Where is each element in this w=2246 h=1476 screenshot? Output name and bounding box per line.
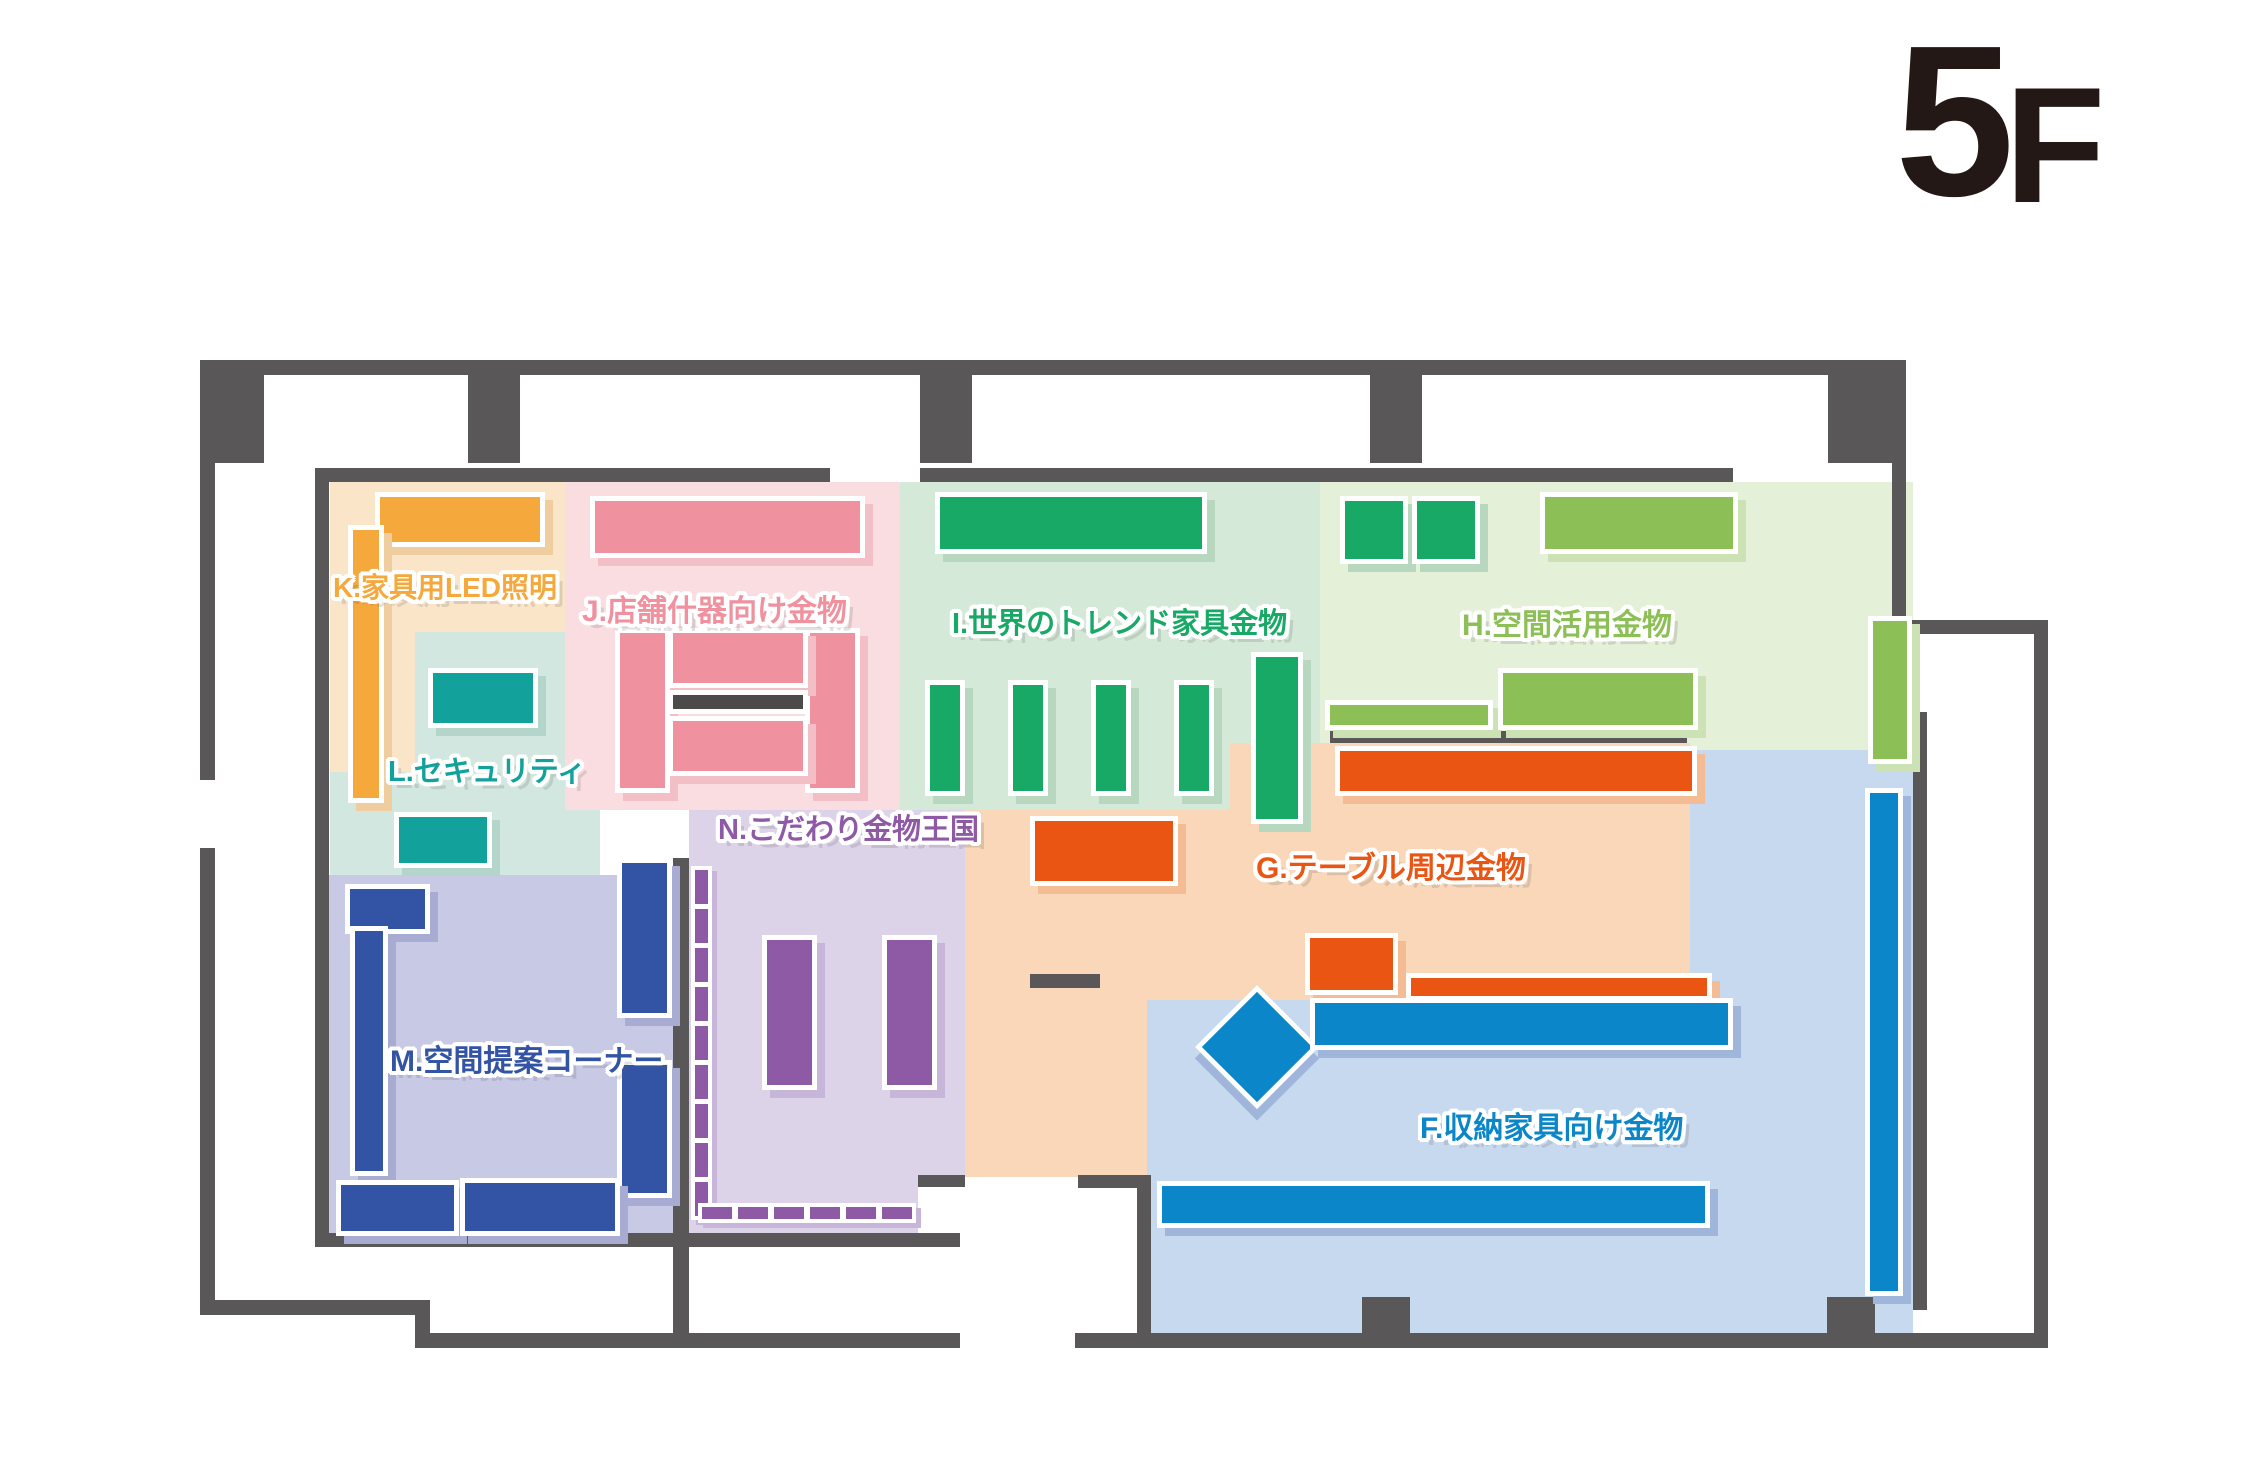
zone-l-label: L.セキュリティ [388,748,586,790]
wall-pillar [920,375,972,463]
fixture-shelf [1251,652,1303,824]
wall-stub-n-notch [918,1175,965,1187]
fixture-shelf [1335,746,1697,796]
floor-title: 5F [1895,18,2175,228]
fixture-display-segment [878,1203,916,1223]
fixture-counter-dark [668,690,808,714]
inner-wall-f-right [1913,712,1927,1310]
fixture-shelf [617,1060,672,1198]
outer-wall-bottom [1075,1333,2048,1348]
fixture-shelf [1008,680,1048,796]
fixture-display-segment [691,1061,712,1103]
fixture-display-segment [691,1100,712,1142]
fixture-shelf [1340,496,1408,564]
fixture-shelf [394,812,492,868]
outer-wall-right-lower [2034,620,2048,1348]
fixture-shelf [925,680,965,796]
wall-pillar [1370,375,1422,463]
fixture-display-segment [734,1203,772,1223]
fixture-shelf [882,935,937,1090]
outer-wall-left-lower [200,848,215,1315]
wall-f-left [1137,1175,1151,1333]
fixture-shelf [1091,680,1131,796]
fixture-display-segment [806,1203,844,1223]
wall-divider-m-n [673,858,689,1333]
wall-pillar [468,375,520,463]
fixture-shelf [1174,680,1214,796]
wall-divider-h-g [1330,731,1687,743]
zone-h-label: H.空間活用金物 [1462,600,1672,644]
floor-number: 5 [1895,13,2005,228]
wall-pillar [1827,1297,1875,1333]
fixture-shelf [1540,492,1738,554]
outer-wall-right-upper [1892,360,1906,622]
fixture-shelf [1865,788,1903,1296]
fixture-shelf [805,628,860,793]
outer-wall-bottom [415,1333,960,1348]
zone-j-label: J.店舗什器向け金物 [582,586,847,630]
fixture-shelf [935,492,1207,554]
fixture-display-segment [691,983,712,1025]
outer-wall-left-upper [200,360,215,780]
wall-stub-g [1030,974,1100,988]
fixture-display-segment [698,1203,736,1223]
fixture-shelf [762,935,817,1090]
fixture-shelf [350,926,388,1176]
fixture-shelf [615,628,670,793]
fixture-display-segment [842,1203,880,1223]
fixture-shelf [668,716,808,776]
fixture-shelf [617,858,672,1018]
outer-wall-top [200,360,1906,375]
inner-wall-top [920,468,1733,482]
outer-wall-bottom-left-step [200,1300,430,1315]
fixture-shelf [1157,1181,1710,1228]
fixture-shelf [1406,973,1712,1001]
zone-i-label: I.世界のトレンド家具金物 [952,600,1287,642]
fixture-shelf [590,496,865,558]
outer-wall-bottom-left-step [415,1300,430,1348]
wall-pillar [1362,1297,1410,1333]
zone-m-label: M.空間提案コーナー [390,1036,663,1080]
zone-n-label: N.こだわり金物王国 [718,806,979,848]
fixture-shelf [1498,668,1698,730]
fixture-shelf [1325,700,1493,730]
fixture-shelf [460,1178,620,1236]
fixture-display-segment [691,866,712,908]
zone-k-label: K.家具用LED照明 [333,566,557,606]
fixture-shelf [428,668,538,728]
inner-wall-left [315,468,329,1247]
fixture-display-segment [691,944,712,986]
wall-pillar [214,375,264,463]
fixture-display-segment [770,1203,808,1223]
fixture-display-segment [691,905,712,947]
fixture-display-segment [691,1139,712,1181]
zone-g-label: G.テーブル周辺金物 [1256,843,1526,887]
fixture-shelf [1030,816,1178,886]
fixture-shelf [668,628,808,688]
fixture-shelf [375,492,545,547]
zone-f-label: F.収納家具向け金物 [1420,1103,1683,1147]
fixture-shelf [1868,616,1912,764]
outer-wall-right-step [1892,620,2048,634]
floor-map-5f: 5F [0,0,2246,1476]
fixture-shelf [1310,998,1733,1050]
floor-letter: F [2005,63,2096,228]
inner-wall-top [315,468,830,482]
fixture-display-segment [691,1022,712,1064]
fixture-shelf [1412,496,1480,564]
fixture-shelf [336,1180,459,1236]
fixture-shelf [1305,933,1398,995]
